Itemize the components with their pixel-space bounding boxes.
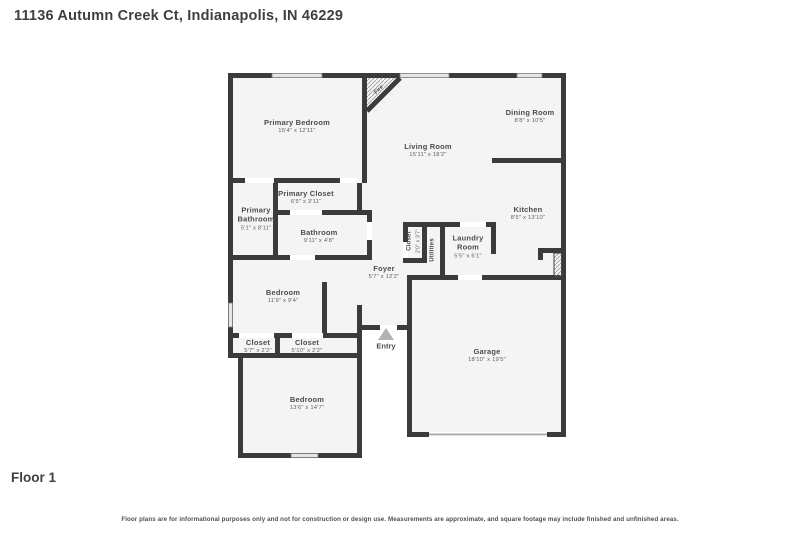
room-dims: 8'8" x 10'5" — [506, 119, 555, 126]
window — [272, 74, 322, 78]
room-dims: 6'5" x 3'11" — [278, 200, 334, 207]
room-label-primary-bedroom: Primary Bedroom 15'4" x 12'11" — [264, 118, 330, 136]
room-label-living-room: Living Room 15'11" x 18'2" — [404, 142, 452, 160]
room-label-closet-right: Closet 5'10" x 2'2" — [292, 338, 323, 356]
room-label-garage: Garage 18'10" x 19'5" — [468, 347, 506, 365]
room-label-utilities: Utilities — [429, 238, 437, 261]
room-dims: 15'4" x 12'11" — [264, 129, 330, 136]
room-name: Garage — [468, 347, 506, 356]
room-dims: 18'10" x 19'5" — [468, 358, 506, 365]
room-dims: 13'6" x 14'7" — [290, 406, 324, 413]
room-label-closet-left: Closet 5'7" x 2'2" — [244, 338, 272, 356]
room-name: Dining Room — [506, 108, 555, 117]
room-name: Bedroom — [290, 395, 324, 404]
room-label-primary-closet: Primary Closet 6'5" x 3'11" — [278, 189, 334, 207]
garage-door — [429, 434, 547, 436]
room-label-laundry-room: Laundry Room 5'5" x 6'1" — [445, 234, 491, 261]
room-label-kitchen: Kitchen 8'5" x 13'10" — [511, 205, 545, 223]
room-name: Kitchen — [511, 205, 545, 214]
room-label-bedroom-bottom: Bedroom 13'6" x 14'7" — [290, 395, 324, 413]
floorplan-page: 11136 Autumn Creek Ct, Indianapolis, IN … — [0, 0, 800, 533]
room-dims: 5'7" x 12'2" — [369, 275, 400, 282]
room-name: Primary Closet — [278, 189, 334, 198]
room-dims: 5'10" x 2'2" — [292, 349, 323, 356]
room-label-primary-bathroom: Primary Bathroom 5'1" x 8'11" — [231, 206, 281, 233]
disclaimer: Floor plans are for informational purpos… — [0, 516, 800, 523]
room-dims: 5'5" x 6'1" — [445, 253, 491, 260]
room-label-foyer: Foyer 5'7" x 12'2" — [369, 264, 400, 282]
room-dims: 2'0" x 3'7" — [415, 229, 421, 253]
room-label-hall-closet: Closet 2'0" x 3'7" — [407, 229, 422, 253]
window — [291, 454, 318, 458]
room-label-bedroom-mid: Bedroom 11'9" x 9'4" — [266, 288, 300, 306]
window — [400, 74, 449, 78]
room-name: Closet — [244, 338, 272, 347]
floorplan-drawing — [0, 0, 800, 533]
room-dims: 8'5" x 13'10" — [511, 216, 545, 223]
floor-label: Floor 1 — [11, 470, 56, 485]
window — [517, 74, 542, 78]
room-dims: 9'11" x 4'8" — [300, 239, 337, 246]
room-name: Bathroom — [300, 228, 337, 237]
kitchen-hatch-area — [554, 253, 562, 277]
room-dims: 5'1" x 8'11" — [231, 225, 281, 232]
room-name: Closet — [407, 229, 415, 253]
room-name: Bedroom — [266, 288, 300, 297]
room-name: Laundry Room — [445, 234, 491, 253]
room-name: Foyer — [369, 264, 400, 273]
entry-label: Entry — [376, 342, 395, 351]
room-name: Utilities — [429, 238, 437, 261]
room-label-dining-room: Dining Room 8'8" x 10'5" — [506, 108, 555, 126]
room-dims: 11'9" x 9'4" — [266, 299, 300, 306]
window — [229, 303, 233, 327]
room-name: Closet — [292, 338, 323, 347]
room-name: Living Room — [404, 142, 452, 151]
room-label-bathroom: Bathroom 9'11" x 4'8" — [300, 228, 337, 246]
room-name: Primary Bathroom — [231, 206, 281, 225]
room-name: Primary Bedroom — [264, 118, 330, 127]
room-dims: 15'11" x 18'2" — [404, 153, 452, 160]
room-dims: 5'7" x 2'2" — [244, 349, 272, 356]
